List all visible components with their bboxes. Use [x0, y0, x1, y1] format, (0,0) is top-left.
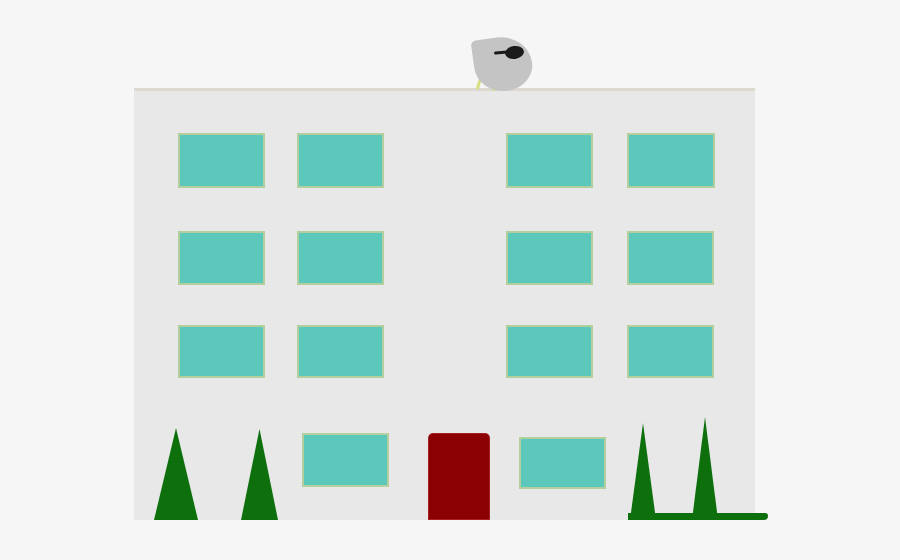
conifer-tree: [692, 417, 718, 520]
clipart-canvas: [0, 0, 900, 560]
conifer-tree: [241, 429, 278, 520]
grass-strip: [628, 513, 768, 520]
conifer-tree: [154, 428, 198, 520]
trees-layer: [0, 0, 900, 560]
conifer-tree: [630, 423, 656, 520]
